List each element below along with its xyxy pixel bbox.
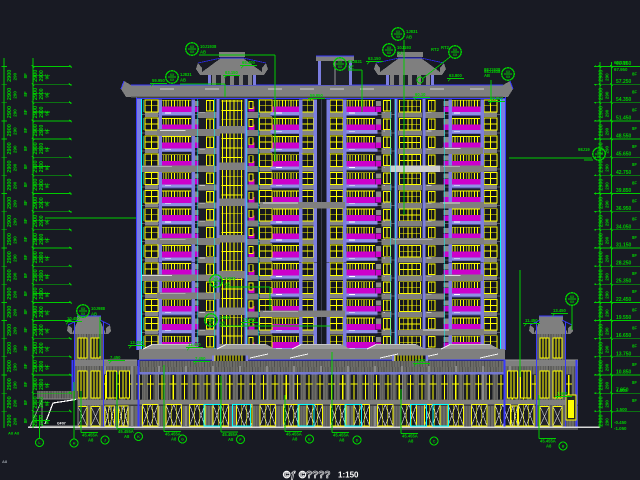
svg-text:AB: AB xyxy=(180,78,186,83)
svg-text:63.150: 63.150 xyxy=(368,56,381,61)
svg-text:8F: 8F xyxy=(632,253,637,258)
svg-text:36.950: 36.950 xyxy=(616,206,632,212)
svg-text:290: 290 xyxy=(605,254,610,262)
svg-text:13.450: 13.450 xyxy=(130,340,143,345)
svg-text:XX: XX xyxy=(190,45,195,49)
svg-text:98J831: 98J831 xyxy=(348,59,363,64)
svg-text:B: B xyxy=(562,445,565,449)
svg-text:8F: 8F xyxy=(632,144,637,149)
svg-text:39.850: 39.850 xyxy=(616,188,632,194)
svg-text:1J831: 1J831 xyxy=(224,276,236,281)
svg-text:RT2: RT2 xyxy=(441,45,450,50)
svg-text:290: 290 xyxy=(605,309,610,317)
svg-text:290: 290 xyxy=(605,291,610,299)
svg-text:7.450: 7.450 xyxy=(110,355,121,360)
svg-text:19.550: 19.550 xyxy=(616,315,632,321)
svg-text:63.150: 63.150 xyxy=(225,70,238,75)
svg-text:XX: XX xyxy=(338,65,343,69)
svg-text:GF07: GF07 xyxy=(57,422,66,426)
svg-text:RT2: RT2 xyxy=(431,47,440,52)
svg-text:290: 290 xyxy=(605,91,610,99)
svg-text:A8: A8 xyxy=(124,434,130,439)
svg-text:65.400: 65.400 xyxy=(242,60,255,65)
svg-text:11.450: 11.450 xyxy=(188,342,201,347)
svg-text:XX: XX xyxy=(506,75,511,79)
svg-text:A8: A8 xyxy=(228,437,234,442)
svg-text:BC: BC xyxy=(397,51,403,56)
svg-text:8F: 8F xyxy=(23,109,28,115)
svg-text:290: 290 xyxy=(605,127,610,135)
svg-text:XX: XX xyxy=(506,70,511,74)
svg-text:XX: XX xyxy=(597,150,602,154)
svg-text:290: 290 xyxy=(13,290,18,298)
svg-text:290: 290 xyxy=(605,327,610,335)
svg-text:290: 290 xyxy=(13,236,18,244)
svg-text:D: D xyxy=(356,439,359,443)
svg-text:290: 290 xyxy=(13,109,18,117)
svg-text:290: 290 xyxy=(605,381,610,389)
svg-text:8F: 8F xyxy=(632,380,637,385)
svg-text:1.500: 1.500 xyxy=(557,391,568,396)
svg-text:XX: XX xyxy=(214,282,219,286)
svg-text:DE: DE xyxy=(348,65,354,70)
svg-text:9F: 9F xyxy=(45,328,50,334)
svg-text:59.950: 59.950 xyxy=(152,78,165,83)
svg-text:290: 290 xyxy=(605,109,610,117)
svg-text:9F: 9F xyxy=(45,419,50,425)
svg-text:8F: 8F xyxy=(632,199,637,204)
svg-text:XX: XX xyxy=(209,321,214,325)
svg-text:290: 290 xyxy=(605,218,610,226)
svg-text:A8 A8: A8 A8 xyxy=(8,431,20,436)
svg-text:290: 290 xyxy=(13,399,18,407)
svg-text:63.800: 63.800 xyxy=(449,73,462,78)
svg-text:8F: 8F xyxy=(23,236,28,242)
svg-text:290: 290 xyxy=(13,254,18,262)
svg-text:9F: 9F xyxy=(45,310,50,316)
svg-text:25.350: 25.350 xyxy=(616,279,632,285)
svg-text:8F: 8F xyxy=(23,327,28,333)
svg-text:9F: 9F xyxy=(45,346,50,352)
svg-text:XX: XX xyxy=(570,300,575,304)
svg-text:9F: 9F xyxy=(45,219,50,225)
svg-text:45.650: 45.650 xyxy=(616,152,632,158)
svg-text:290: 290 xyxy=(605,164,610,172)
svg-text:290: 290 xyxy=(13,72,18,80)
svg-text:8F: 8F xyxy=(632,108,637,113)
svg-text:XX: XX xyxy=(214,277,219,281)
svg-text:XX: XX xyxy=(570,295,575,299)
svg-text:1.500: 1.500 xyxy=(616,407,628,412)
svg-text:8F: 8F xyxy=(632,162,637,167)
svg-text:8F: 8F xyxy=(632,71,637,76)
svg-text:290: 290 xyxy=(13,326,18,334)
svg-text:AB: AB xyxy=(224,282,230,287)
svg-text:K: K xyxy=(137,435,140,439)
svg-text:J: J xyxy=(104,439,106,443)
svg-text:8F: 8F xyxy=(632,217,637,222)
svg-text:1J831: 1J831 xyxy=(219,315,231,320)
svg-text:8F: 8F xyxy=(632,90,637,95)
svg-text:XX: XX xyxy=(453,53,458,57)
svg-text:8F: 8F xyxy=(23,182,28,188)
svg-text:A8: A8 xyxy=(408,439,414,444)
svg-text:G: G xyxy=(181,438,184,442)
svg-text:290: 290 xyxy=(13,127,18,135)
svg-text:-0.450: -0.450 xyxy=(614,420,627,425)
svg-text:51.450: 51.450 xyxy=(616,115,632,121)
svg-text:AB: AB xyxy=(91,312,97,317)
svg-text:290: 290 xyxy=(13,308,18,316)
svg-text:59.950: 59.950 xyxy=(490,96,503,101)
svg-text:54.350: 54.350 xyxy=(616,97,632,103)
svg-text:8F: 8F xyxy=(23,73,28,79)
svg-text:8F: 8F xyxy=(23,164,28,170)
svg-text:9F: 9F xyxy=(45,237,50,243)
svg-text:AB: AB xyxy=(200,50,206,55)
svg-text:8F: 8F xyxy=(23,418,28,424)
svg-text:A8: A8 xyxy=(546,444,552,449)
svg-text:9F: 9F xyxy=(45,146,50,152)
svg-text:290: 290 xyxy=(13,363,18,371)
svg-text:42.750: 42.750 xyxy=(616,170,632,176)
svg-text:10.850: 10.850 xyxy=(616,369,632,375)
svg-text:9F: 9F xyxy=(45,364,50,370)
svg-text:13.750: 13.750 xyxy=(616,351,632,357)
svg-text:1J831: 1J831 xyxy=(180,72,192,77)
svg-text:9F: 9F xyxy=(45,165,50,171)
svg-text:10J193: 10J193 xyxy=(397,45,412,50)
svg-text:A8: A8 xyxy=(339,438,345,443)
svg-text:290: 290 xyxy=(13,345,18,353)
svg-text:69.150: 69.150 xyxy=(614,60,628,65)
svg-text:290: 290 xyxy=(13,417,18,425)
svg-text:XX: XX xyxy=(396,30,401,34)
svg-text:16.650: 16.650 xyxy=(616,333,632,339)
svg-text:290: 290 xyxy=(605,400,610,408)
svg-text:XX: XX xyxy=(453,48,458,52)
svg-text:13.450: 13.450 xyxy=(553,308,566,313)
svg-text:34.050: 34.050 xyxy=(616,224,632,230)
svg-text:8F: 8F xyxy=(23,91,28,97)
svg-text:XX: XX xyxy=(81,312,86,316)
svg-text:XX: XX xyxy=(209,316,214,320)
svg-text:1:150: 1:150 xyxy=(338,471,359,480)
svg-text:A8: A8 xyxy=(292,437,298,442)
svg-text:290: 290 xyxy=(605,418,610,426)
svg-text:8F: 8F xyxy=(632,126,637,131)
svg-text:9F: 9F xyxy=(45,401,50,407)
svg-text:9F: 9F xyxy=(45,292,50,298)
svg-text:XX: XX xyxy=(81,307,86,311)
svg-text:8F: 8F xyxy=(632,235,637,240)
svg-text:XX: XX xyxy=(387,51,392,55)
svg-text:10J1938: 10J1938 xyxy=(200,44,217,49)
svg-text:XX: XX xyxy=(396,35,401,39)
svg-text:9F: 9F xyxy=(45,74,50,80)
svg-text:290: 290 xyxy=(605,182,610,190)
svg-text:9F: 9F xyxy=(45,255,50,261)
svg-text:A8: A8 xyxy=(88,438,94,443)
svg-text:9F: 9F xyxy=(45,110,50,116)
svg-text:290: 290 xyxy=(13,163,18,171)
svg-text:290: 290 xyxy=(13,199,18,207)
svg-text:290: 290 xyxy=(13,145,18,153)
svg-text:290: 290 xyxy=(13,272,18,280)
svg-text:8F: 8F xyxy=(632,271,637,276)
svg-text:9F: 9F xyxy=(45,183,50,189)
svg-text:98J1938: 98J1938 xyxy=(484,67,501,72)
svg-text:8F: 8F xyxy=(632,289,637,294)
svg-text:8F: 8F xyxy=(632,326,637,331)
svg-text:A8: A8 xyxy=(171,437,177,442)
svg-text:7.450: 7.450 xyxy=(195,356,206,361)
svg-text:AB: AB xyxy=(406,35,412,40)
svg-text:XX: XX xyxy=(387,46,392,50)
svg-text:290: 290 xyxy=(13,181,18,189)
svg-text:290: 290 xyxy=(605,236,610,244)
svg-text:290: 290 xyxy=(13,218,18,226)
svg-text:8F: 8F xyxy=(23,309,28,315)
svg-text:C: C xyxy=(433,440,436,444)
svg-text:©ƒ ©????: ©ƒ ©???? xyxy=(283,470,331,480)
svg-text:-1.050: -1.050 xyxy=(614,426,627,431)
svg-text:31.150: 31.150 xyxy=(616,242,632,248)
svg-text:XX: XX xyxy=(338,60,343,64)
svg-text:59.950: 59.950 xyxy=(310,93,323,98)
svg-text:8F: 8F xyxy=(23,273,28,279)
svg-text:11.450: 11.450 xyxy=(525,318,538,323)
svg-text:XX: XX xyxy=(170,78,175,82)
svg-text:8F: 8F xyxy=(23,218,28,224)
svg-text:H: H xyxy=(73,442,76,446)
svg-text:9F: 9F xyxy=(45,201,50,207)
svg-text:8F: 8F xyxy=(23,145,28,151)
svg-text:290: 290 xyxy=(13,91,18,99)
svg-text:A8: A8 xyxy=(2,459,8,464)
svg-text:8F: 8F xyxy=(632,344,637,349)
svg-text:9F: 9F xyxy=(45,128,50,134)
svg-text:290: 290 xyxy=(605,273,610,281)
svg-text:290: 290 xyxy=(605,345,610,353)
svg-text:290: 290 xyxy=(605,73,610,81)
svg-text:10.450: 10.450 xyxy=(67,316,80,321)
svg-text:48.550: 48.550 xyxy=(616,134,632,140)
svg-text:290: 290 xyxy=(605,200,610,208)
svg-text:XX: XX xyxy=(597,155,602,159)
svg-text:8F: 8F xyxy=(632,362,637,367)
svg-text:8F: 8F xyxy=(23,400,28,406)
svg-text:28.250: 28.250 xyxy=(616,261,632,267)
svg-text:8F: 8F xyxy=(23,127,28,133)
svg-text:8F: 8F xyxy=(23,381,28,387)
svg-text:8F: 8F xyxy=(23,291,28,297)
svg-text:9F: 9F xyxy=(45,274,50,280)
svg-text:4.500: 4.500 xyxy=(616,388,628,393)
svg-text:22.450: 22.450 xyxy=(616,297,632,303)
svg-text:290: 290 xyxy=(13,381,18,389)
svg-text:XX: XX xyxy=(170,73,175,77)
svg-text:7.450: 7.450 xyxy=(415,358,426,363)
svg-text:10J988: 10J988 xyxy=(91,306,106,311)
svg-text:57.250: 57.250 xyxy=(616,79,632,85)
svg-text:XX: XX xyxy=(190,50,195,54)
svg-text:8F: 8F xyxy=(23,200,28,206)
svg-text:67.950: 67.950 xyxy=(614,67,628,72)
svg-text:AB: AB xyxy=(219,321,225,326)
svg-text:8F: 8F xyxy=(632,307,637,312)
svg-text:11.950: 11.950 xyxy=(243,317,256,322)
svg-text:AB: AB xyxy=(484,73,490,78)
svg-text:8F: 8F xyxy=(23,363,28,369)
svg-text:8F: 8F xyxy=(23,345,28,351)
svg-text:9F: 9F xyxy=(45,382,50,388)
svg-text:8F: 8F xyxy=(632,398,637,403)
svg-text:98J19: 98J19 xyxy=(578,147,590,152)
svg-text:60.10: 60.10 xyxy=(415,92,426,97)
svg-text:1J831: 1J831 xyxy=(406,29,418,34)
svg-text:9F: 9F xyxy=(45,92,50,98)
svg-text:8F: 8F xyxy=(632,180,637,185)
svg-text:8F: 8F xyxy=(23,254,28,260)
svg-text:290: 290 xyxy=(605,363,610,371)
